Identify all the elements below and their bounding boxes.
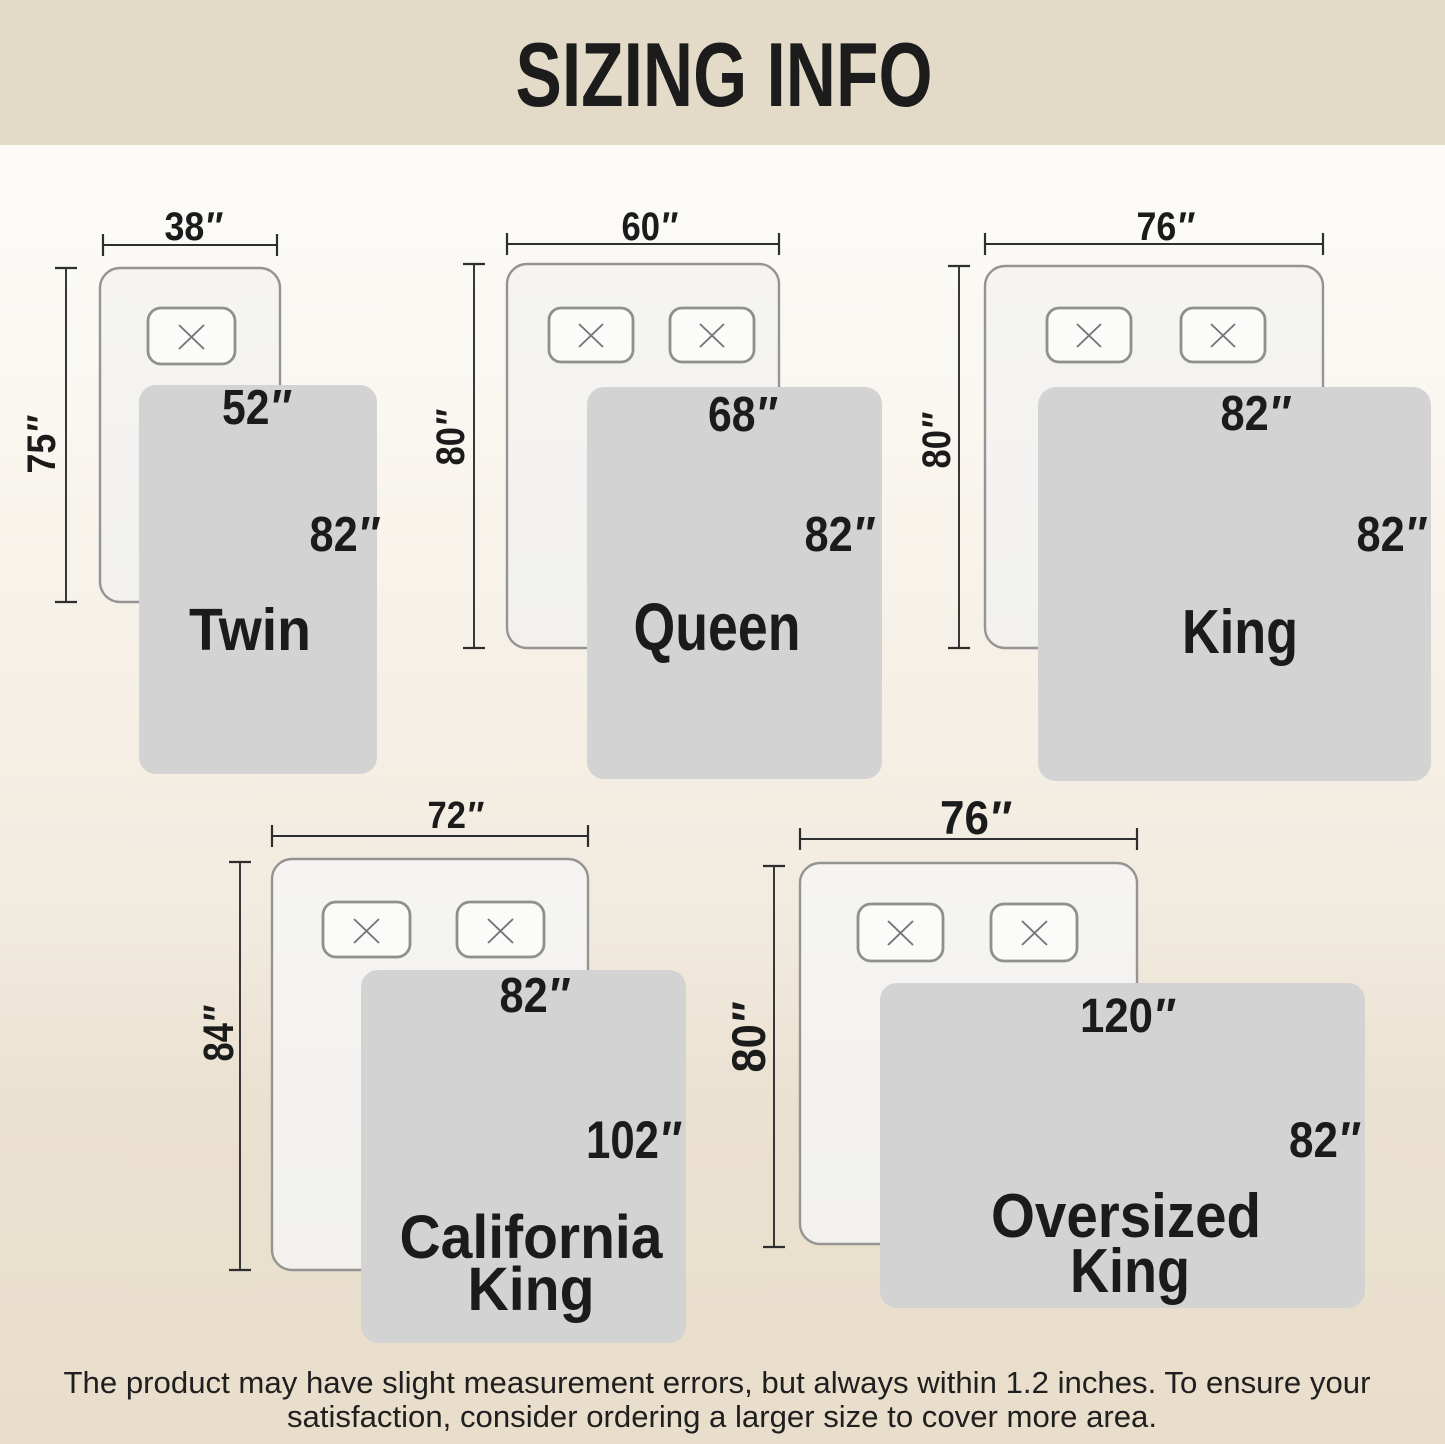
svg-text:82″: 82″ xyxy=(1357,508,1428,562)
svg-text:The product may have slight me: The product may have slight measurement … xyxy=(64,1365,1371,1400)
svg-text:82″: 82″ xyxy=(310,508,381,562)
svg-text:38″: 38″ xyxy=(165,205,224,249)
svg-text:Queen: Queen xyxy=(634,590,801,665)
svg-text:52″: 52″ xyxy=(222,381,292,435)
svg-text:King: King xyxy=(1070,1237,1190,1306)
svg-text:King: King xyxy=(468,1255,595,1323)
svg-text:84″: 84″ xyxy=(195,1005,243,1062)
svg-text:72″: 72″ xyxy=(428,795,485,837)
svg-text:80″: 80″ xyxy=(915,412,959,469)
svg-text:60″: 60″ xyxy=(622,205,679,249)
svg-text:120″: 120″ xyxy=(1080,990,1176,1043)
svg-text:102″: 102″ xyxy=(586,1111,682,1170)
svg-text:68″: 68″ xyxy=(708,388,778,442)
svg-text:King: King xyxy=(1182,598,1298,667)
svg-text:76″: 76″ xyxy=(1137,205,1196,249)
svg-text:Twin: Twin xyxy=(189,597,311,663)
svg-text:SIZING INFO: SIZING INFO xyxy=(516,25,933,126)
svg-text:80″: 80″ xyxy=(722,1001,775,1072)
svg-text:75″: 75″ xyxy=(20,415,64,474)
svg-text:80″: 80″ xyxy=(429,409,473,466)
svg-text:76″: 76″ xyxy=(940,791,1012,844)
svg-text:82″: 82″ xyxy=(805,508,876,562)
svg-text:satisfaction, consider orderin: satisfaction, consider ordering a larger… xyxy=(287,1399,1157,1434)
svg-text:82″: 82″ xyxy=(1289,1112,1361,1168)
svg-text:82″: 82″ xyxy=(500,969,571,1023)
svg-text:82″: 82″ xyxy=(1221,387,1292,441)
